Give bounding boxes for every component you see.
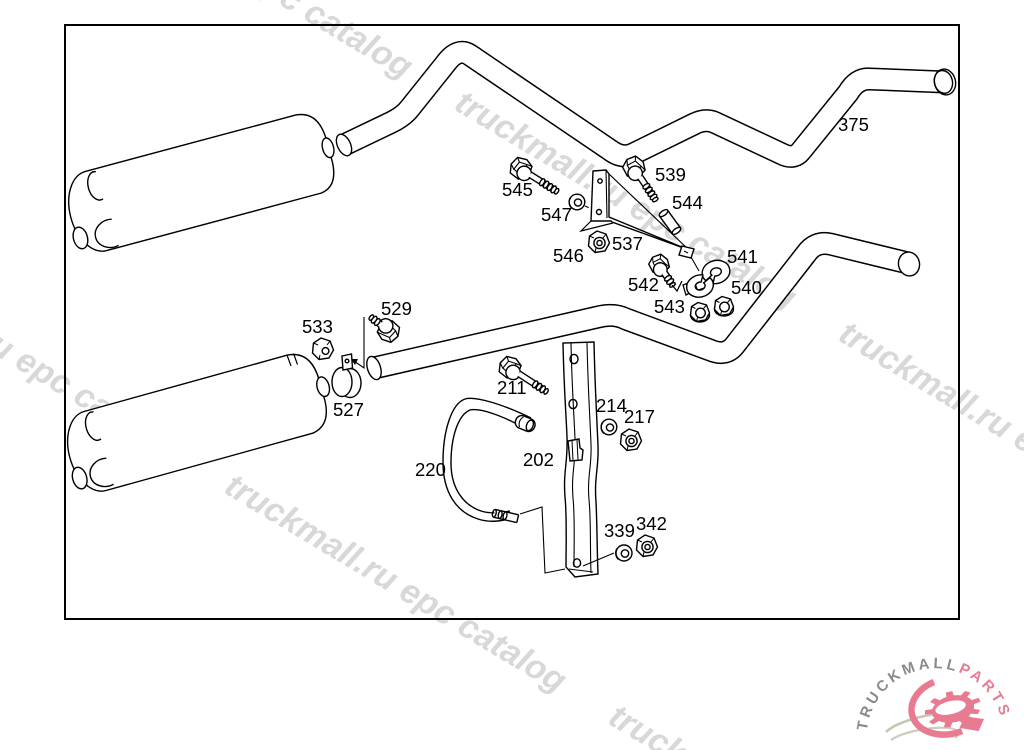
svg-text:339: 339 (604, 520, 635, 541)
svg-text:220: 220 (415, 459, 446, 480)
svg-text:539: 539 (655, 164, 686, 185)
svg-text:375: 375 (838, 114, 869, 135)
svg-text:217: 217 (624, 406, 655, 427)
svg-text:546: 546 (553, 245, 584, 266)
svg-text:545: 545 (502, 179, 533, 200)
svg-text:214: 214 (596, 395, 627, 416)
svg-text:202: 202 (523, 449, 554, 470)
svg-text:truckmall.ru epc catalog: truckmall.ru epc catalog (602, 697, 957, 750)
svg-text:527: 527 (333, 399, 364, 420)
svg-text:542: 542 (628, 274, 659, 295)
svg-text:529: 529 (381, 298, 412, 319)
svg-text:211: 211 (497, 377, 527, 398)
svg-text:342: 342 (636, 513, 667, 534)
svg-text:547: 547 (541, 204, 572, 225)
svg-text:541: 541 (727, 246, 758, 267)
svg-text:truckmall.ru epc catalog: truckmall.ru epc catalog (833, 314, 1024, 548)
svg-text:543: 543 (654, 296, 685, 317)
svg-text:544: 544 (672, 192, 703, 213)
svg-text:truckmall.ru epc catalog: truckmall.ru epc catalog (65, 0, 420, 86)
svg-text:533: 533 (302, 316, 333, 337)
svg-text:truckmall.ru epc catalog: truckmall.ru epc catalog (218, 466, 573, 700)
svg-text:540: 540 (731, 277, 762, 298)
svg-text:537: 537 (612, 233, 643, 254)
